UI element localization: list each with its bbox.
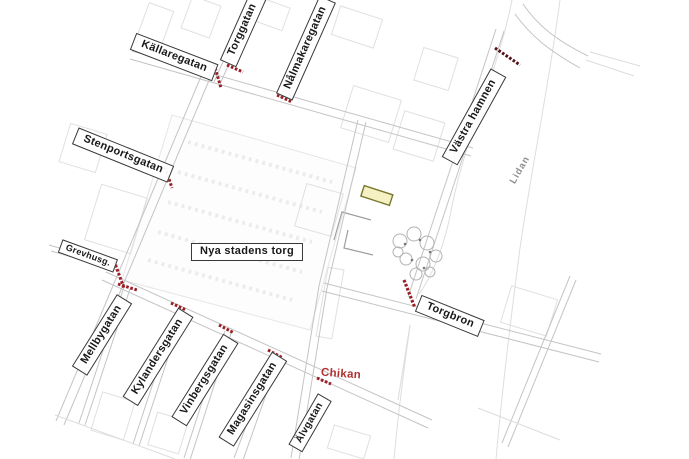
red-dotted-marker bbox=[495, 48, 520, 65]
square-block bbox=[122, 115, 356, 330]
square-label-nya-stadens-torg: Nya stadens torg bbox=[191, 243, 303, 261]
trees-sketch bbox=[393, 227, 442, 280]
map-line-art bbox=[0, 0, 689, 459]
highlighted-building bbox=[361, 186, 393, 206]
map-canvas: Källaregatan Torggatan Nålmakaregatan St… bbox=[0, 0, 689, 459]
